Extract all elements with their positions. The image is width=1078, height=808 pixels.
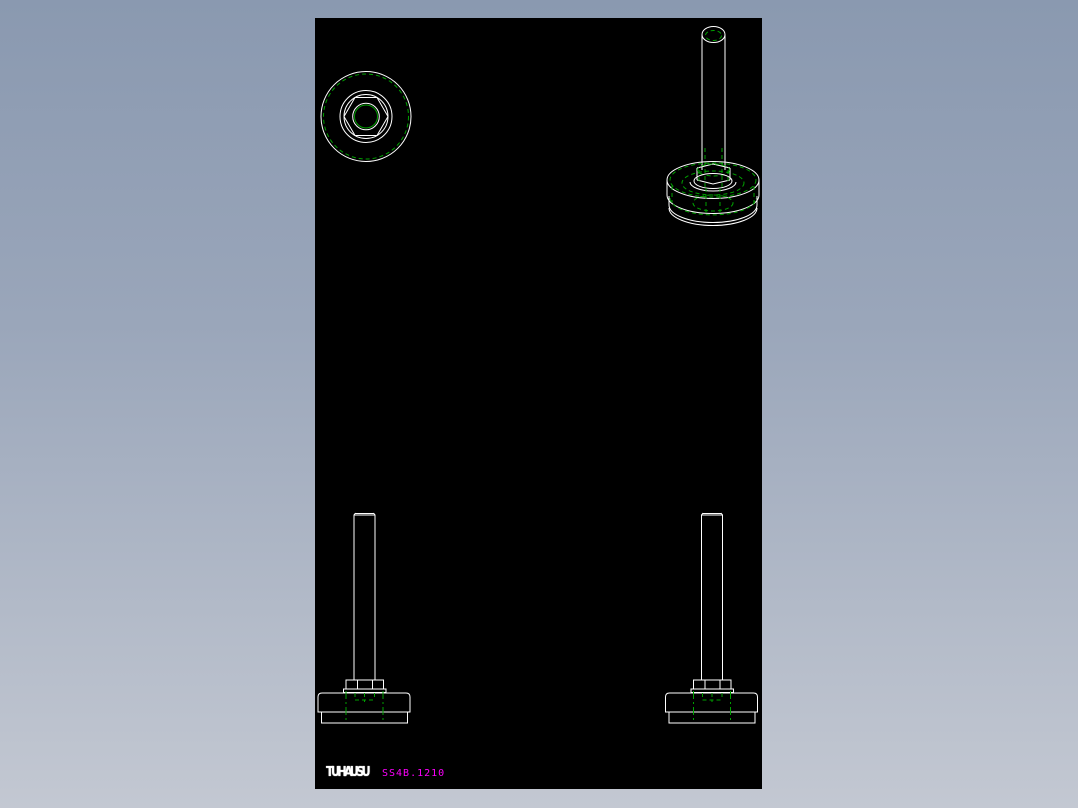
cad-drawing (315, 18, 762, 789)
watermark-logo-text: TUHAUSU (326, 765, 368, 780)
top-view (321, 72, 411, 162)
part-number-text: SS4B.1210 (382, 768, 445, 779)
desktop-background: { "window": { "background_gradient_top":… (0, 0, 1078, 808)
front-view-right (666, 513, 758, 723)
cad-drawing-canvas: TUHAUSU SS4B.1210 (315, 18, 762, 789)
front-view-left (318, 513, 410, 723)
isometric-view (667, 27, 759, 226)
